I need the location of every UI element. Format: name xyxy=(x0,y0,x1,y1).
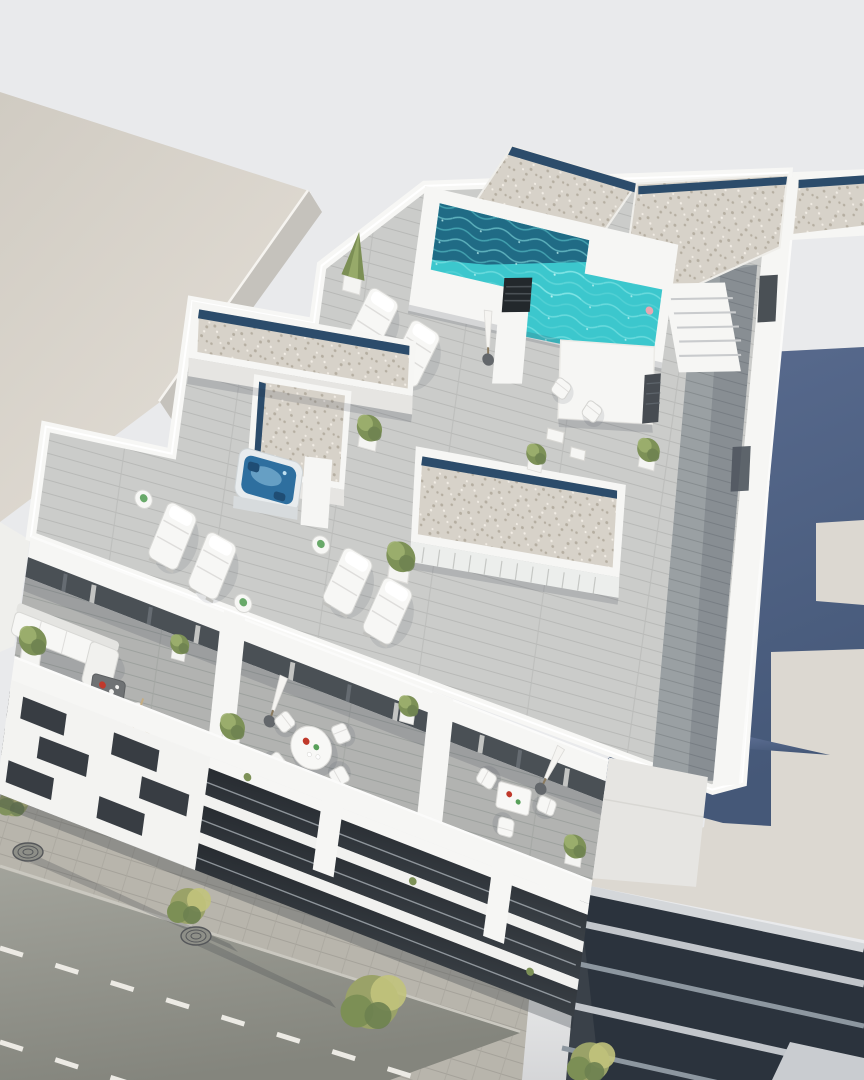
tree-grate-2 xyxy=(181,927,211,945)
render-canvas xyxy=(0,0,864,1080)
architectural-render xyxy=(0,0,864,1080)
tree-grate xyxy=(13,843,43,861)
